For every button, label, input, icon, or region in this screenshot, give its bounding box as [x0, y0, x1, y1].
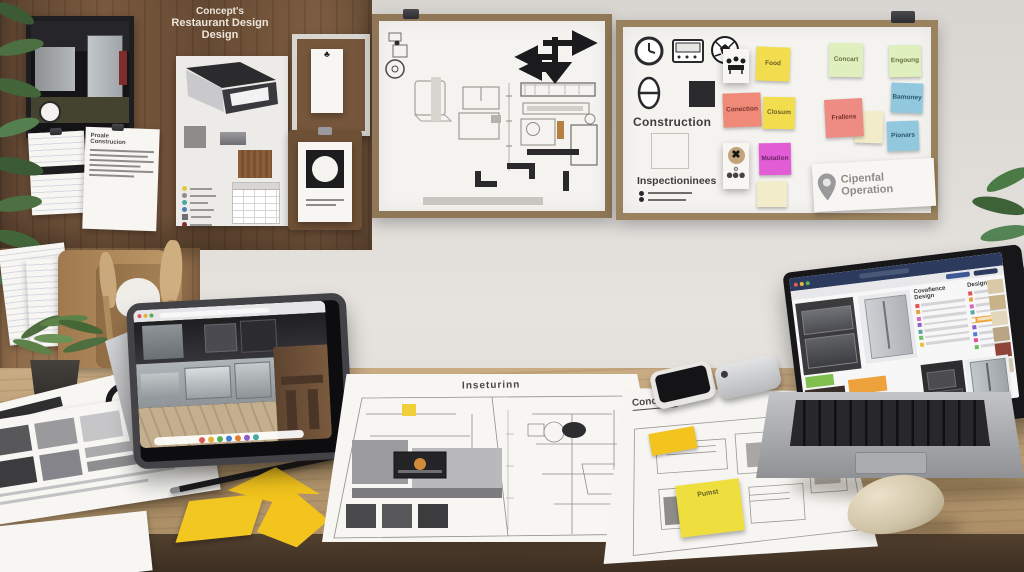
camera-icon [720, 370, 728, 378]
compliance-panel: Covafience Design [913, 283, 970, 349]
clipboard-circle [288, 130, 362, 230]
sticky-label: Concart [834, 56, 859, 64]
photo-inset [394, 452, 446, 478]
pinned-document-right: Proale Construcion [82, 127, 160, 232]
inspection-checklist [639, 189, 692, 204]
clipboard-card: ♣ [292, 34, 370, 136]
x-mark-card: ✖ ⚙ ⚫⚫⚫ [723, 143, 749, 189]
floorplan-sketches [379, 21, 605, 211]
circle-diagram [306, 150, 344, 188]
gear-icon: ⚙ [723, 166, 749, 173]
tablet-screen [133, 300, 332, 448]
fridge-photo [858, 290, 918, 364]
sticky-label: Bamoney [892, 94, 921, 102]
appliance-swatch [220, 132, 246, 145]
pill-icon [639, 78, 659, 108]
calculator-icon [673, 40, 703, 62]
meeting-card [723, 49, 749, 83]
swatch-green [805, 374, 834, 388]
wood-counter [273, 344, 332, 441]
highlight-marker [402, 404, 416, 416]
sticky-note: Engoung [889, 45, 922, 78]
binder-clip-icon [50, 128, 62, 136]
color-legend [182, 184, 216, 229]
laptop-trackpad [855, 452, 927, 474]
sticky-label: Frallens [831, 114, 856, 122]
operation-sign: Cipenfal Operation [812, 158, 936, 212]
sign-line2: Operation [841, 184, 893, 198]
sticky-label: Food [765, 60, 781, 68]
sticky-note: Food [755, 46, 790, 81]
laptop-keyboard [790, 400, 990, 446]
sticky-note: Conection [722, 92, 761, 127]
circle-diagram-sheet [298, 142, 352, 222]
oven-photo [795, 297, 861, 376]
construction-label: Construction [633, 115, 711, 129]
isometric-design-drawing [180, 60, 284, 122]
club-icon: ♣ [311, 49, 343, 59]
meeting-icon [725, 55, 747, 75]
sticky-note-desk-label: Pumst [697, 488, 719, 498]
binder-clip-icon [403, 9, 419, 19]
x-icon: ✖ [728, 147, 745, 164]
workspace-scene: Concept's Restaurant Design Design Proal… [0, 0, 1024, 572]
sticky-label: Pionars [891, 132, 915, 140]
map-pin-icon [816, 172, 838, 203]
toolbar-button-navy [973, 268, 997, 276]
toolbar-button-blue [946, 271, 970, 279]
people-icons: ⚫⚫⚫ [723, 173, 749, 179]
sticky-note: Closum [763, 97, 796, 130]
inspection-label: Inspectioninees [637, 175, 716, 187]
sticky-note-desk: Pumst [675, 478, 745, 537]
framed-kitchen-photo [26, 16, 134, 138]
pinboard-title-line2: Restaurant Design [150, 17, 290, 29]
binder-clip-icon [891, 11, 915, 23]
sticky-label: Conection [726, 106, 758, 114]
sticky-label: Engoung [891, 57, 919, 65]
dark-swatch [689, 81, 715, 107]
pinboard-title: Concept's Restaurant Design Design [150, 6, 290, 41]
sticky-note: Frallens [824, 98, 864, 138]
pinboard-title-line1: Concept's [150, 6, 290, 17]
moodboard-sheet [176, 56, 288, 226]
mini-calendar [232, 182, 280, 224]
sticky-note-blank [757, 181, 787, 207]
pinboard-title-line3: Design [150, 29, 290, 41]
laptop-deck [756, 392, 1024, 478]
document-title-line2: Construcion [90, 139, 154, 147]
clipboard-clip-icon [318, 127, 332, 135]
spec-card: ♣ [311, 49, 343, 113]
sticky-label: Mutation [761, 155, 788, 163]
sticky-note: Bamoney [890, 82, 923, 113]
sticky-note: Pionars [886, 120, 919, 151]
sticky-note: Mutation [759, 143, 792, 176]
wood-material-swatch [238, 150, 272, 178]
whiteboard-planning: Construction Inspectioninees ✖ ⚙ ⚫⚫⚫ Foo… [616, 20, 938, 220]
whiteboard-plans [372, 14, 612, 218]
construction-placeholder-box [651, 133, 689, 169]
sticky-note: Concart [829, 43, 864, 78]
clock-icon [636, 38, 662, 64]
binder-clip-icon [112, 124, 124, 131]
steel-counters [136, 357, 276, 408]
photo-logo-badge [39, 101, 61, 123]
sticky-label: Closum [767, 109, 791, 117]
tablet [126, 292, 354, 469]
gray-material-swatch [184, 126, 206, 148]
